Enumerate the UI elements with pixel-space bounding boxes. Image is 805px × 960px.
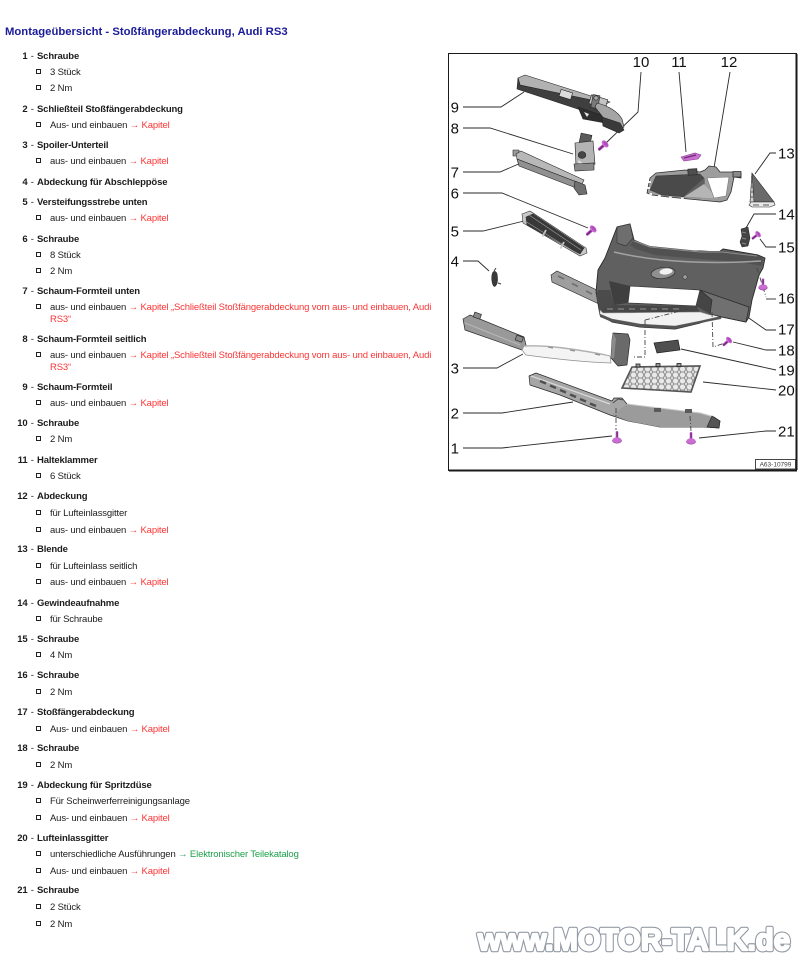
svg-text:9: 9	[451, 100, 459, 117]
svg-text:18: 18	[778, 343, 795, 360]
svg-text:2: 2	[451, 406, 459, 423]
svg-text:5: 5	[451, 224, 459, 241]
svg-text:17: 17	[778, 322, 795, 339]
svg-text:6: 6	[451, 186, 459, 203]
svg-text:7: 7	[451, 165, 459, 182]
svg-text:15: 15	[778, 240, 795, 257]
svg-text:14: 14	[778, 207, 795, 224]
svg-text:A63-10799: A63-10799	[760, 462, 792, 469]
svg-text:12: 12	[721, 54, 738, 71]
svg-text:www.MOTOR-TALK.de: www.MOTOR-TALK.de	[477, 922, 790, 957]
svg-text:13: 13	[778, 146, 795, 163]
svg-text:16: 16	[778, 291, 795, 308]
svg-text:8: 8	[451, 121, 459, 138]
svg-text:19: 19	[778, 363, 795, 380]
svg-text:20: 20	[778, 383, 795, 400]
svg-text:1: 1	[451, 441, 459, 458]
svg-text:3: 3	[451, 361, 459, 378]
svg-text:21: 21	[778, 424, 795, 441]
svg-text:4: 4	[451, 254, 459, 271]
svg-text:11: 11	[671, 54, 687, 71]
svg-text:10: 10	[633, 54, 650, 71]
